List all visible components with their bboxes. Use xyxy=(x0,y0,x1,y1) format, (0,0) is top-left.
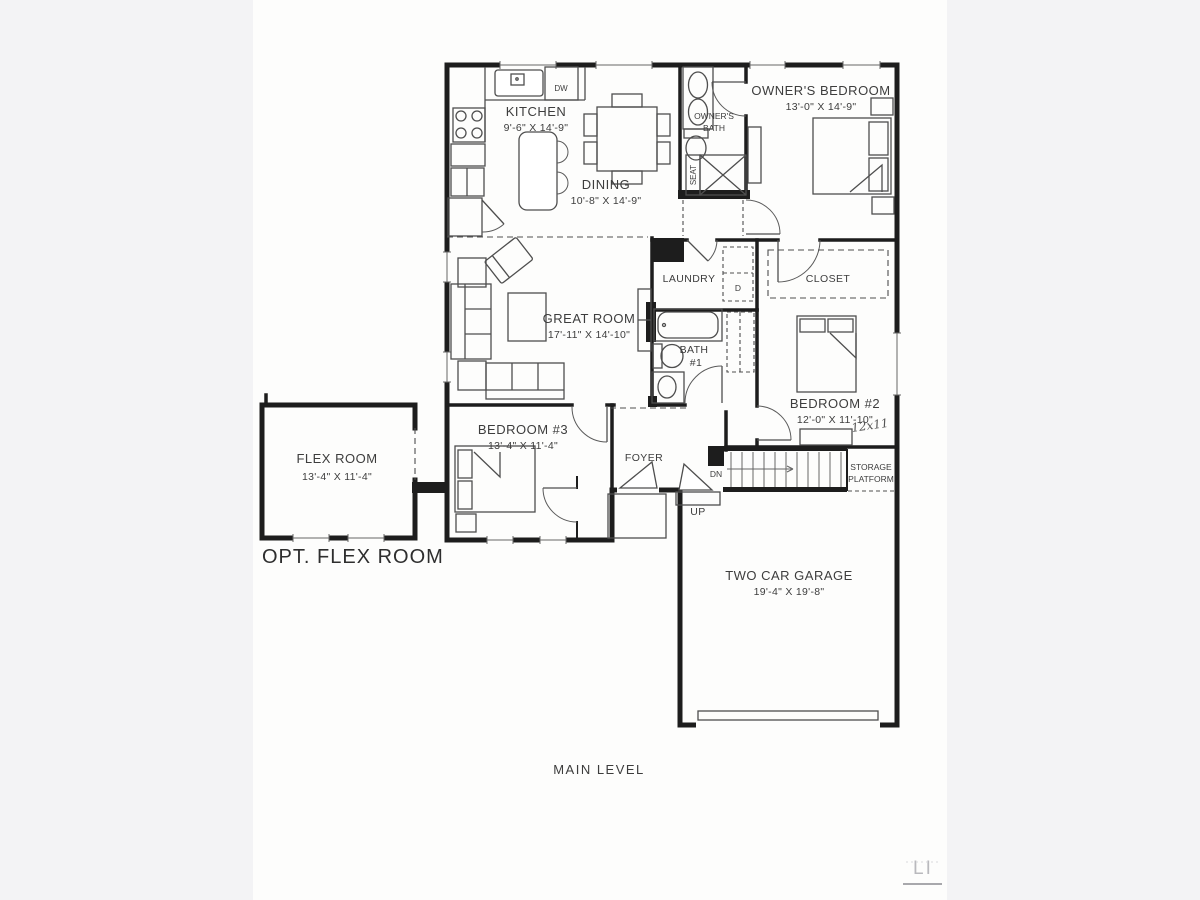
window xyxy=(540,536,566,544)
kitchen-name: KITCHEN xyxy=(506,104,567,119)
bedroom3-dims: 13'-4" X 11'-4" xyxy=(488,440,558,452)
room-great-room: GREAT ROOM 17'-11" X 14'-10" xyxy=(451,237,651,399)
bed-fixture xyxy=(797,316,856,392)
counter-fixture xyxy=(451,144,485,166)
hall-opening-dashes xyxy=(683,200,743,236)
shower-fixture: SEAT xyxy=(686,155,746,195)
front-door xyxy=(620,462,657,488)
stair-landing xyxy=(676,492,720,505)
storage-platform-label2: PLATFORM xyxy=(848,474,894,484)
front-stoop xyxy=(608,494,666,538)
linen-closet xyxy=(727,312,754,372)
room-bedroom2: BEDROOM #2 12'-0" X 11'-10" 12x11 xyxy=(757,316,889,445)
room-closet: CLOSET xyxy=(768,240,888,298)
opt-flex-room-caption: OPT. FLEX ROOM xyxy=(262,546,444,568)
window xyxy=(443,352,451,382)
garage-door xyxy=(698,711,878,720)
nightstand-fixture xyxy=(871,98,893,115)
watermark: LI xyxy=(903,858,942,884)
end-table-fixture xyxy=(458,361,486,390)
sink-fixture xyxy=(495,70,543,96)
sofa-fixture xyxy=(486,363,564,399)
bedroom2-door xyxy=(757,406,791,440)
tub-fixture xyxy=(654,309,722,341)
end-table-fixture xyxy=(458,258,486,287)
kitchen-dims: 9'-6" X 14'-9" xyxy=(504,122,569,134)
owners-bedroom-dims: 13'-0" X 14'-9" xyxy=(786,101,857,113)
flex-connector xyxy=(412,482,448,493)
garage-name: TWO CAR GARAGE xyxy=(725,568,853,583)
bed-fixture xyxy=(813,118,891,194)
window xyxy=(487,536,513,544)
bedroom3-closet-door xyxy=(543,488,577,522)
owners-bedroom-door xyxy=(746,200,780,234)
window xyxy=(500,61,556,69)
bed-fixture xyxy=(455,446,535,512)
floor-plan-svg: DW KITCHEN 9'-6" X 14'-9" DINING 10'-8" … xyxy=(0,0,1200,900)
nightstand-fixture xyxy=(872,197,894,214)
dining-table-fixture xyxy=(584,94,670,184)
shower-seat-label: SEAT xyxy=(689,165,698,185)
house-outline xyxy=(447,65,897,725)
nightstand-fixture xyxy=(456,514,476,532)
dining-dims: 10'-8" X 14'-9" xyxy=(571,195,642,207)
owners-bath-name2: BATH xyxy=(703,123,725,133)
flex-room-name: FLEX ROOM xyxy=(296,451,377,466)
room-garage: TWO CAR GARAGE 19'-4" X 19'-8" xyxy=(696,568,880,730)
dishwasher-fixture: DW xyxy=(545,67,578,100)
floor-plan-scan: DW KITCHEN 9'-6" X 14'-9" DINING 10'-8" … xyxy=(0,0,1200,900)
garage-entry-door xyxy=(679,464,712,490)
stairs-up-label: UP xyxy=(690,506,705,518)
great-room-dims: 17'-11" X 14'-10" xyxy=(548,329,630,341)
closet-name: CLOSET xyxy=(806,273,851,285)
laundry-door xyxy=(708,240,717,261)
foyer-name: FOYER xyxy=(625,452,663,464)
room-bedroom3: BEDROOM #3 13'-4" X 11'-4" xyxy=(455,407,607,532)
laundry-name: LAUNDRY xyxy=(663,273,716,285)
room-foyer: FOYER xyxy=(608,408,712,538)
owners-bedroom-name: OWNER'S BEDROOM xyxy=(751,83,890,98)
window xyxy=(596,61,652,69)
window xyxy=(293,534,329,542)
island-fixture xyxy=(519,132,568,210)
window xyxy=(443,252,451,282)
armchair-fixture xyxy=(484,237,533,284)
sofa-fixture xyxy=(451,284,491,359)
watermark-text: LI xyxy=(913,858,933,879)
window xyxy=(348,534,384,542)
dining-name: DINING xyxy=(582,177,631,192)
bedroom3-name: BEDROOM #3 xyxy=(478,422,568,437)
dresser-fixture xyxy=(800,429,852,445)
room-flex: FLEX ROOM 13'-4" X 11'-4" OPT. FLEX ROOM xyxy=(262,395,448,568)
flex-room-dims: 13'-4" X 11'-4" xyxy=(302,471,372,483)
bath1-door xyxy=(685,366,722,403)
bedroom2-name: BEDROOM #2 xyxy=(790,396,880,411)
pantry xyxy=(448,198,504,236)
storage-platform-label1: STORAGE xyxy=(850,462,892,472)
room-bath1: BATH #1 xyxy=(652,309,754,403)
window xyxy=(750,61,785,69)
dishwasher-label: DW xyxy=(554,84,568,93)
room-kitchen: DW KITCHEN 9'-6" X 14'-9" xyxy=(448,67,585,236)
dryer-label: D xyxy=(735,283,741,293)
bath1-name1: BATH xyxy=(680,344,709,356)
great-room-name: GREAT ROOM xyxy=(543,311,636,326)
range-fixture xyxy=(453,108,485,142)
main-level-caption: MAIN LEVEL xyxy=(553,762,645,777)
stairs-down-label: DN xyxy=(710,469,722,479)
toilet-fixture xyxy=(653,344,683,368)
room-owners-bath: SEAT OWNER'S BATH xyxy=(683,67,746,236)
window xyxy=(893,333,901,395)
window xyxy=(843,61,880,69)
dresser-fixture xyxy=(748,127,761,183)
owners-bath-name1: OWNER'S xyxy=(694,111,734,121)
bath1-name2: #1 xyxy=(690,357,702,369)
coffee-table-fixture xyxy=(508,293,546,341)
bedroom3-door xyxy=(572,407,607,442)
garage-dims: 19'-4" X 19'-8" xyxy=(754,586,825,598)
room-owners-bedroom: OWNER'S BEDROOM 13'-0" X 14'-9" xyxy=(746,83,894,234)
refrigerator-fixture xyxy=(451,168,484,196)
